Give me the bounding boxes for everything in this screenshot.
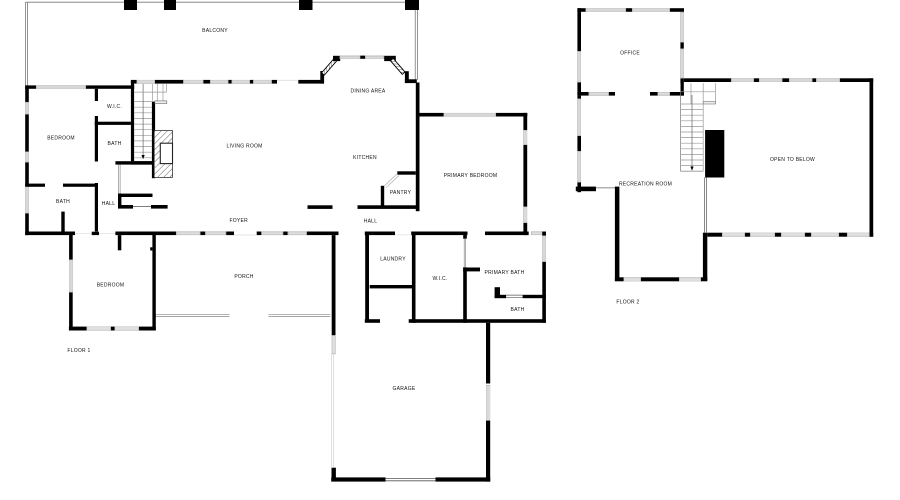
svg-text:LIVING ROOM: LIVING ROOM xyxy=(226,143,262,149)
svg-text:BATH: BATH xyxy=(108,141,122,147)
svg-text:W.I.C.: W.I.C. xyxy=(432,276,447,282)
svg-text:BEDROOM: BEDROOM xyxy=(97,282,125,288)
svg-text:BALCONY: BALCONY xyxy=(202,28,228,34)
svg-text:PRIMARY BEDROOM: PRIMARY BEDROOM xyxy=(444,173,498,179)
svg-text:RECREATION ROOM: RECREATION ROOM xyxy=(619,182,672,188)
svg-text:HALL: HALL xyxy=(102,201,116,207)
svg-text:PORCH: PORCH xyxy=(234,274,253,280)
svg-text:DINING AREA: DINING AREA xyxy=(351,88,386,94)
svg-text:BEDROOM: BEDROOM xyxy=(47,135,75,141)
svg-text:OFFICE: OFFICE xyxy=(620,50,640,56)
svg-text:FLOOR 1: FLOOR 1 xyxy=(67,348,90,354)
svg-text:W.I.C.: W.I.C. xyxy=(107,104,122,110)
svg-text:FOYER: FOYER xyxy=(229,218,248,224)
svg-text:BATH: BATH xyxy=(511,307,525,313)
svg-text:HALL: HALL xyxy=(364,218,378,224)
svg-text:GARAGE: GARAGE xyxy=(393,386,416,392)
svg-text:PRIMARY BATH: PRIMARY BATH xyxy=(485,270,525,276)
svg-text:OPEN TO BELOW: OPEN TO BELOW xyxy=(770,157,815,163)
svg-text:FLOOR 2: FLOOR 2 xyxy=(616,300,639,306)
svg-text:PANTRY: PANTRY xyxy=(390,190,412,196)
svg-text:LAUNDRY: LAUNDRY xyxy=(380,257,406,263)
svg-text:BATH: BATH xyxy=(56,199,70,205)
svg-text:KITCHEN: KITCHEN xyxy=(353,155,377,161)
